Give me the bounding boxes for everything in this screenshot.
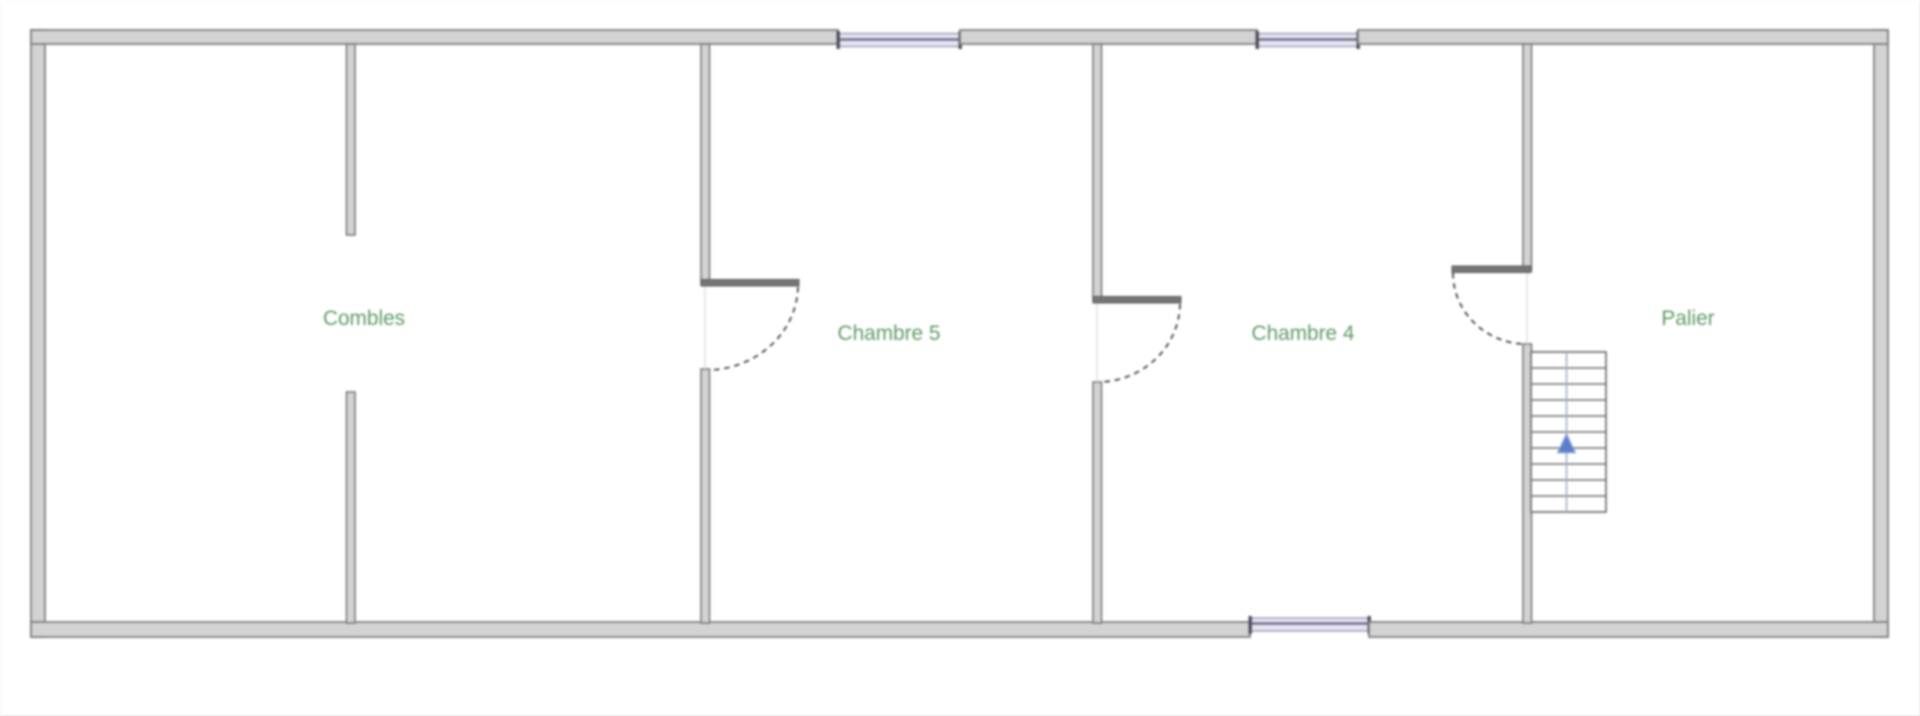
svg-text:Combles: Combles — [323, 307, 405, 330]
svg-text:Chambre 5: Chambre 5 — [838, 322, 941, 345]
svg-text:Chambre 4: Chambre 4 — [1252, 322, 1355, 345]
svg-text:Palier: Palier — [1661, 307, 1714, 330]
